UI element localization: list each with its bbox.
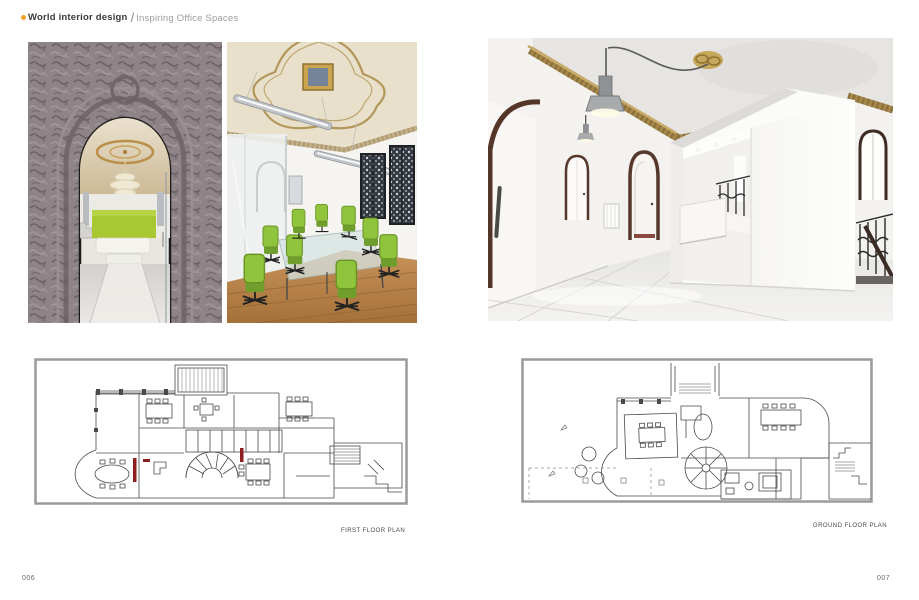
white-hall-illustration [488,38,893,321]
floor-plan-ground [521,358,873,503]
plan-label-first: FIRST FLOOR PLAN [341,528,405,534]
page-title: World interior design [28,12,128,23]
first-floor-plan-drawing [34,358,408,505]
page-subtitle: Inspiring Office Spaces [136,13,238,24]
arch-photo-illustration [28,42,222,323]
arched-doorway [630,152,658,240]
photo-arch-entrance [28,42,222,323]
photo-meeting-room [227,42,417,323]
left-door [488,100,540,321]
arched-window [860,131,886,200]
window [390,146,414,224]
photo-white-hall [488,38,893,321]
title-separator: / [131,11,135,24]
page-number-left: 006 [22,575,35,582]
ground-floor-plan-drawing [521,358,873,503]
floor-plan-first [34,358,408,505]
window [361,154,385,218]
page-number-right: 007 [877,575,890,582]
meeting-room-illustration [227,42,417,323]
stair-tread [856,276,893,284]
plan-label-ground: GROUND FLOOR PLAN [813,523,887,529]
orange-dot-icon [21,15,26,20]
radiator [604,204,619,228]
arched-doorway [566,156,588,220]
page-header: World interior design / Inspiring Office… [21,11,238,24]
ceiling-medallion-icon [693,51,723,69]
